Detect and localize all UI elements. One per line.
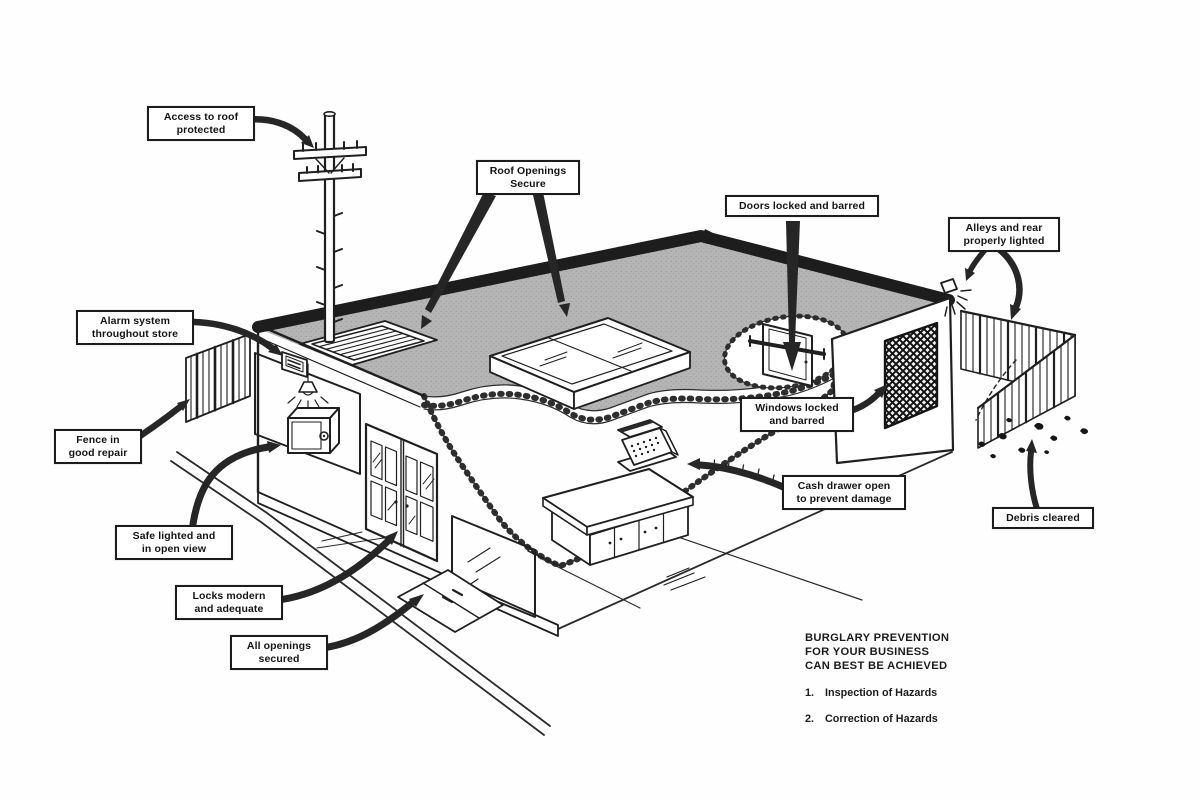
callout-line: Secure xyxy=(482,178,574,191)
callout-line: Roof Openings xyxy=(482,165,574,178)
callout-line: Windows locked xyxy=(746,402,848,415)
callout-access-to-roof-protected: Access to roof protected xyxy=(147,106,255,141)
callout-line: throughout store xyxy=(82,328,188,341)
callout-line: and barred xyxy=(746,415,848,428)
right-fence xyxy=(961,311,1075,448)
callout-line: Fence in xyxy=(60,434,136,447)
callout-line: Safe lighted and xyxy=(121,530,227,543)
callout-roof-openings-secure: Roof Openings Secure xyxy=(476,160,580,195)
callout-cash-drawer-open: Cash drawer open to prevent damage xyxy=(782,475,906,510)
callout-line: All openings xyxy=(236,640,322,653)
callout-safe-lighted-and-in-open-view: Safe lighted and in open view xyxy=(115,525,233,560)
callout-line: Alleys and rear xyxy=(954,222,1054,235)
callout-line: properly lighted xyxy=(954,235,1054,248)
callout-line: in open view xyxy=(121,543,227,556)
callout-line: Debris cleared xyxy=(998,512,1088,525)
burglary-prevention-diagram: Access to roof protected Roof Openings S… xyxy=(0,0,1200,800)
callout-fence-in-good-repair: Fence in good repair xyxy=(54,429,142,464)
callout-line: to prevent damage xyxy=(788,493,900,506)
footer-heading: BURGLARY PREVENTION FOR YOUR BUSINESS CA… xyxy=(805,632,1025,673)
callout-line: Locks modern xyxy=(181,590,277,603)
callout-doors-locked-and-barred: Doors locked and barred xyxy=(725,195,879,217)
footer-item-text: Correction of Hazards xyxy=(825,713,938,725)
arrow-cash-drawer xyxy=(687,458,788,489)
safe-icon xyxy=(288,408,339,453)
arrow-alleys-lamp xyxy=(965,250,985,281)
arrow-alleys-fence xyxy=(1000,250,1021,320)
callout-line: Cash drawer open xyxy=(788,480,900,493)
callout-line: good repair xyxy=(60,447,136,460)
footer-item-1: 1. Inspection of Hazards xyxy=(805,687,1025,699)
footer-item-number: 1. xyxy=(805,687,825,699)
callout-line: and adequate xyxy=(181,603,277,616)
alarm-box-icon xyxy=(282,352,307,377)
callout-alleys-and-rear-properly-lighted: Alleys and rear properly lighted xyxy=(948,217,1060,252)
footer-heading-line: FOR YOUR BUSINESS xyxy=(805,646,1025,660)
callout-debris-cleared: Debris cleared xyxy=(992,507,1094,529)
footer-heading-line: CAN BEST BE ACHIEVED xyxy=(805,660,1025,674)
cash-register-icon xyxy=(618,420,678,471)
footer-text-block: BURGLARY PREVENTION FOR YOUR BUSINESS CA… xyxy=(805,632,1025,725)
counter xyxy=(543,469,693,565)
footer-item-number: 2. xyxy=(805,713,825,725)
callout-windows-locked-and-barred: Windows locked and barred xyxy=(740,397,854,432)
arrow-safe-lighted xyxy=(193,441,281,524)
callout-locks-modern-and-adequate: Locks modern and adequate xyxy=(175,585,283,620)
footer-item-2: 2. Correction of Hazards xyxy=(805,713,1025,725)
callout-line: Alarm system xyxy=(82,315,188,328)
callout-alarm-system-throughout-store: Alarm system throughout store xyxy=(76,310,194,345)
footer-heading-line: BURGLARY PREVENTION xyxy=(805,632,1025,646)
callout-line: Doors locked and barred xyxy=(731,200,873,213)
callout-all-openings-secured: All openings secured xyxy=(230,635,328,670)
callout-line: Access to roof xyxy=(153,111,249,124)
footer-item-text: Inspection of Hazards xyxy=(825,687,937,699)
entry-doors xyxy=(366,424,437,561)
callout-line: protected xyxy=(153,124,249,137)
arrow-debris-cleared xyxy=(1026,439,1037,509)
left-fence xyxy=(186,334,250,422)
callout-line: secured xyxy=(236,653,322,666)
